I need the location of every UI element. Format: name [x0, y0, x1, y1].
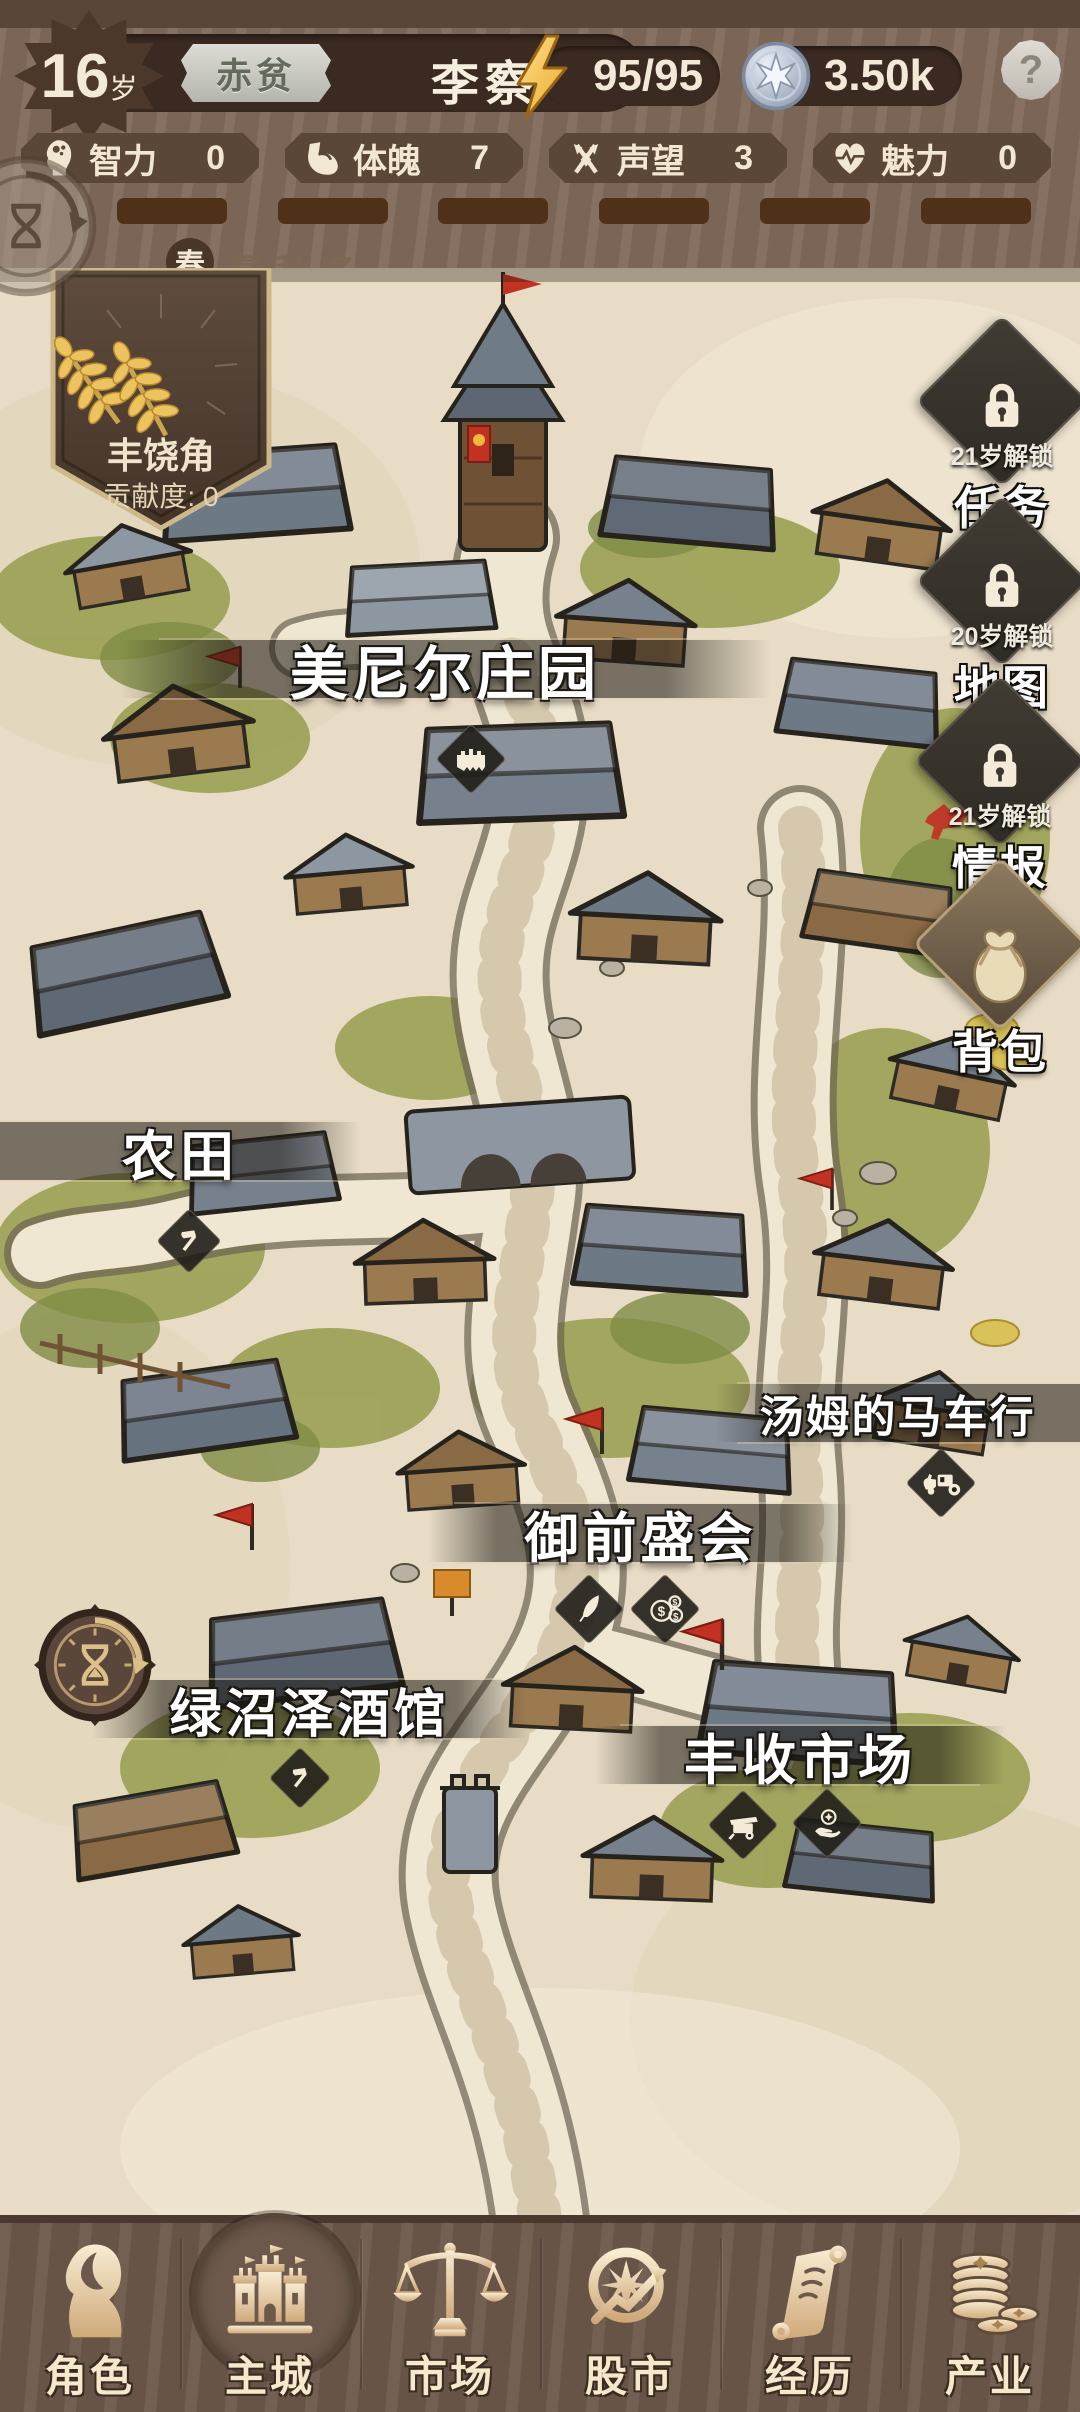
- guild-banner[interactable]: 丰饶角 贡献度: 0: [45, 268, 277, 534]
- age-suffix: 岁: [109, 67, 137, 107]
- guild-name: 丰饶角: [107, 435, 215, 476]
- top-hud: 16 岁 赤贫 李察 95/95 3.50k ? 智力 0 体魄 7 声望 3 …: [0, 0, 1080, 268]
- year-segment: [760, 198, 870, 224]
- marker-farmland[interactable]: [158, 1210, 220, 1272]
- castle-icon: [211, 2237, 329, 2343]
- crossed-axes-icon: [565, 137, 607, 179]
- carriage-icon: [921, 1467, 961, 1499]
- nav-label: 角色: [45, 2343, 135, 2404]
- wealth-badge: 赤贫: [181, 44, 331, 102]
- muscle-icon: [301, 137, 343, 179]
- nav-label: 经历: [765, 2343, 855, 2404]
- time-chip[interactable]: [0, 152, 100, 300]
- hand-coin-icon: [810, 1806, 844, 1840]
- stat-charm: 魅力 0: [813, 133, 1051, 183]
- lock-icon: [971, 737, 1029, 795]
- location-label: 丰收市场: [684, 1716, 916, 1795]
- stat-value: 0: [998, 139, 1017, 178]
- bag-icon: [958, 923, 1042, 1007]
- unlock-text: 21岁解锁: [949, 797, 1052, 833]
- marker-manor[interactable]: [438, 726, 504, 792]
- help-glyph: ?: [1019, 48, 1043, 93]
- marker-royal-fair-coins[interactable]: $$$: [632, 1576, 698, 1642]
- svg-text:$: $: [673, 1612, 679, 1623]
- character-icon: [31, 2237, 149, 2343]
- location-label: 御前盛会: [525, 1494, 757, 1573]
- status-strip: [0, 0, 1080, 28]
- coin-icon: [740, 40, 812, 112]
- marker-market-trade[interactable]: [794, 1790, 860, 1856]
- nav-label: 产业: [945, 2343, 1035, 2404]
- lock-icon: [973, 557, 1031, 615]
- coin-stack-icon: [931, 2237, 1049, 2343]
- stat-label: 体魄: [353, 134, 421, 183]
- location-label: 美尼尔庄园: [290, 627, 600, 711]
- stat-value: 0: [206, 139, 225, 178]
- marker-tavern[interactable]: [270, 1748, 330, 1808]
- stat-label: 声望: [617, 134, 685, 183]
- location-label: 绿沼泽酒馆: [169, 1672, 449, 1747]
- marker-royal-fair-quill[interactable]: [556, 1576, 622, 1642]
- stat-value: 7: [470, 139, 489, 178]
- stat-physique: 体魄 7: [285, 133, 523, 183]
- marker-carriage-shop[interactable]: [908, 1450, 974, 1516]
- game-screen: 16 岁 赤贫 李察 95/95 3.50k ? 智力 0 体魄 7 声望 3 …: [0, 0, 1080, 2412]
- svg-text:$: $: [672, 1597, 677, 1607]
- unlock-text: 20岁解锁: [951, 617, 1054, 653]
- marker-market-cart[interactable]: [710, 1792, 776, 1858]
- stat-label: 魅力: [881, 134, 949, 183]
- svg-text:$: $: [658, 1604, 666, 1619]
- lock-icon: [973, 377, 1031, 435]
- age-value: 16: [41, 41, 110, 112]
- year-segment: [278, 198, 388, 224]
- location-farmland[interactable]: 农田: [0, 1122, 360, 1180]
- nav-label: 股市: [585, 2343, 675, 2404]
- hammer-icon: [285, 1763, 315, 1793]
- year-segment: [117, 198, 227, 224]
- scales-icon: [391, 2237, 509, 2343]
- location-manor[interactable]: 美尼尔庄园: [120, 640, 770, 698]
- nav-market[interactable]: 市场: [360, 2223, 540, 2412]
- manor-icon: [453, 741, 489, 777]
- guild-contribution: 贡献度: 0: [103, 481, 218, 512]
- coins-icon: $$$: [647, 1591, 683, 1627]
- quill-icon: [573, 1593, 605, 1625]
- bottom-nav: 角色 主城: [0, 2223, 1080, 2412]
- nav-label: 市场: [405, 2343, 495, 2404]
- town-map[interactable]: 丰饶角 贡献度: 0 21岁解锁 任务 20岁解锁 地图 21岁解锁 情报: [0, 268, 1080, 2223]
- year-segment: [438, 198, 548, 224]
- nav-character[interactable]: 角色: [0, 2223, 180, 2412]
- energy-icon: [505, 34, 575, 120]
- hammer-icon: [173, 1225, 205, 1257]
- location-royal-fair[interactable]: 御前盛会: [428, 1504, 853, 1562]
- nav-stocks[interactable]: 股市: [540, 2223, 720, 2412]
- stocks-icon: [571, 2237, 689, 2343]
- location-label: 汤姆的马车行: [760, 1381, 1036, 1445]
- location-carriage-shop[interactable]: 汤姆的马车行: [715, 1384, 1080, 1442]
- wait-button[interactable]: [34, 1604, 156, 1726]
- heart-pulse-icon: [829, 137, 871, 179]
- scroll-icon: [751, 2237, 869, 2343]
- location-label: 农田: [122, 1112, 238, 1191]
- energy-value: 95/95: [593, 51, 703, 101]
- location-harvest-market[interactable]: 丰收市场: [595, 1726, 1005, 1784]
- nav-experience[interactable]: 经历: [720, 2223, 900, 2412]
- nav-label: 主城: [225, 2343, 315, 2404]
- unlock-text: 21岁解锁: [951, 437, 1054, 473]
- side-button-backpack[interactable]: 背包: [915, 882, 1080, 1082]
- year-segment: [921, 198, 1031, 224]
- nav-industry[interactable]: 产业: [900, 2223, 1080, 2412]
- cart-stall-icon: [725, 1809, 761, 1841]
- location-tavern[interactable]: 绿沼泽酒馆: [92, 1680, 527, 1738]
- currency-value: 3.50k: [824, 51, 934, 101]
- stat-reputation: 声望 3: [549, 133, 787, 183]
- year-segment: [599, 198, 709, 224]
- stat-value: 3: [734, 139, 753, 178]
- nav-city[interactable]: 主城: [180, 2223, 360, 2412]
